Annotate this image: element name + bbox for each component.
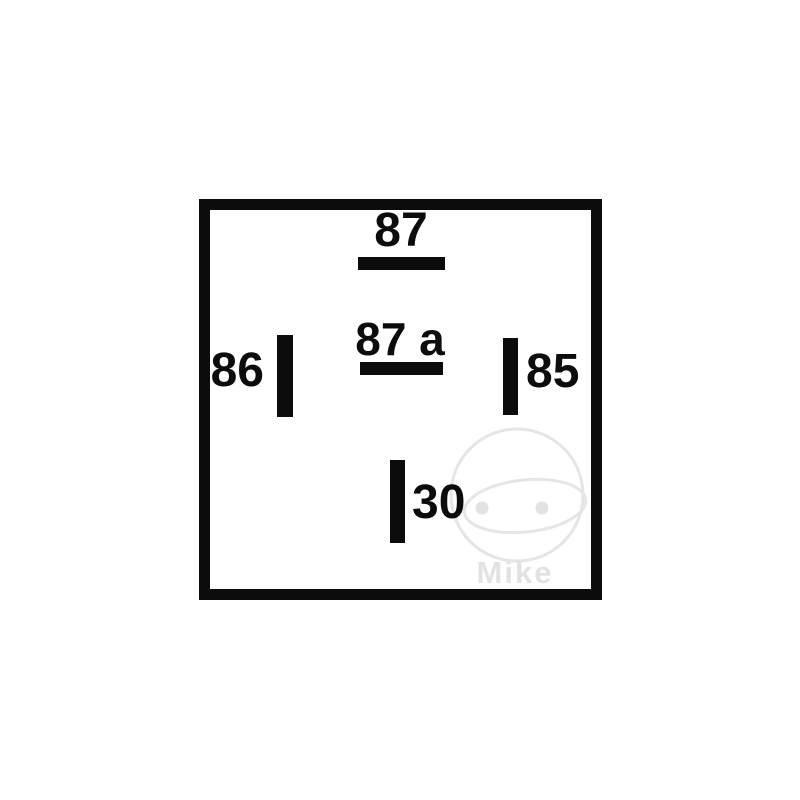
- relay-diagram-canvas: Mike 87 87 a 86 85 30: [0, 0, 800, 800]
- pin-label-86: 86: [164, 347, 264, 395]
- pin-label-85: 85: [526, 348, 626, 396]
- pin-blade-85: [503, 338, 518, 415]
- pin-label-87: 87: [351, 207, 451, 255]
- pin-blade-86: [277, 335, 293, 417]
- pin-label-30: 30: [412, 479, 512, 527]
- pin-label-87a: 87 a: [350, 316, 450, 362]
- pin-blade-87: [358, 257, 445, 270]
- pin-blade-30: [390, 460, 405, 543]
- pin-blade-87a: [360, 362, 443, 375]
